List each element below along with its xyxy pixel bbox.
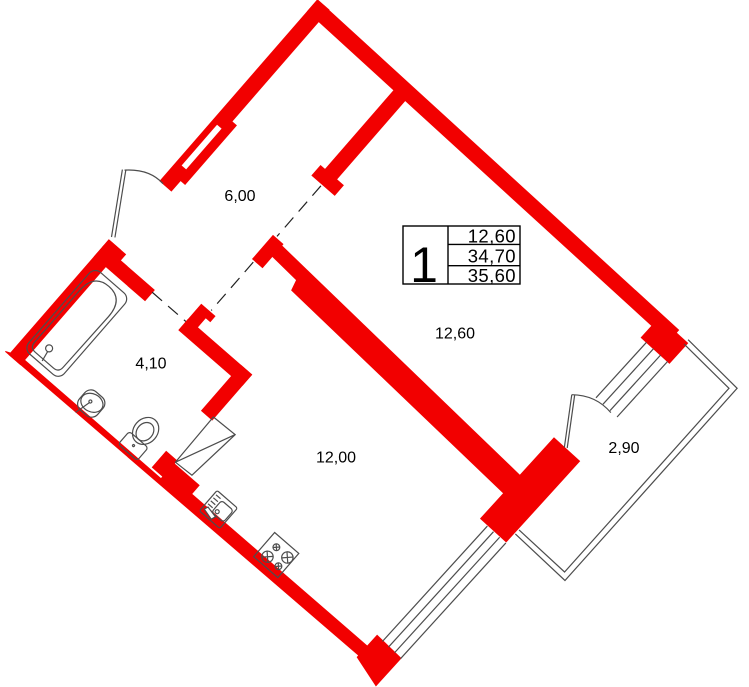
svg-text:1: 1 — [410, 237, 438, 293]
svg-text:12,60: 12,60 — [435, 326, 475, 343]
svg-text:34,70: 34,70 — [468, 245, 516, 266]
svg-text:12,60: 12,60 — [468, 225, 516, 246]
svg-text:2,90: 2,90 — [608, 440, 639, 457]
svg-text:4,10: 4,10 — [135, 356, 166, 373]
svg-text:35,60: 35,60 — [468, 265, 516, 286]
svg-text:6,00: 6,00 — [224, 188, 255, 205]
svg-text:12,00: 12,00 — [316, 450, 356, 467]
